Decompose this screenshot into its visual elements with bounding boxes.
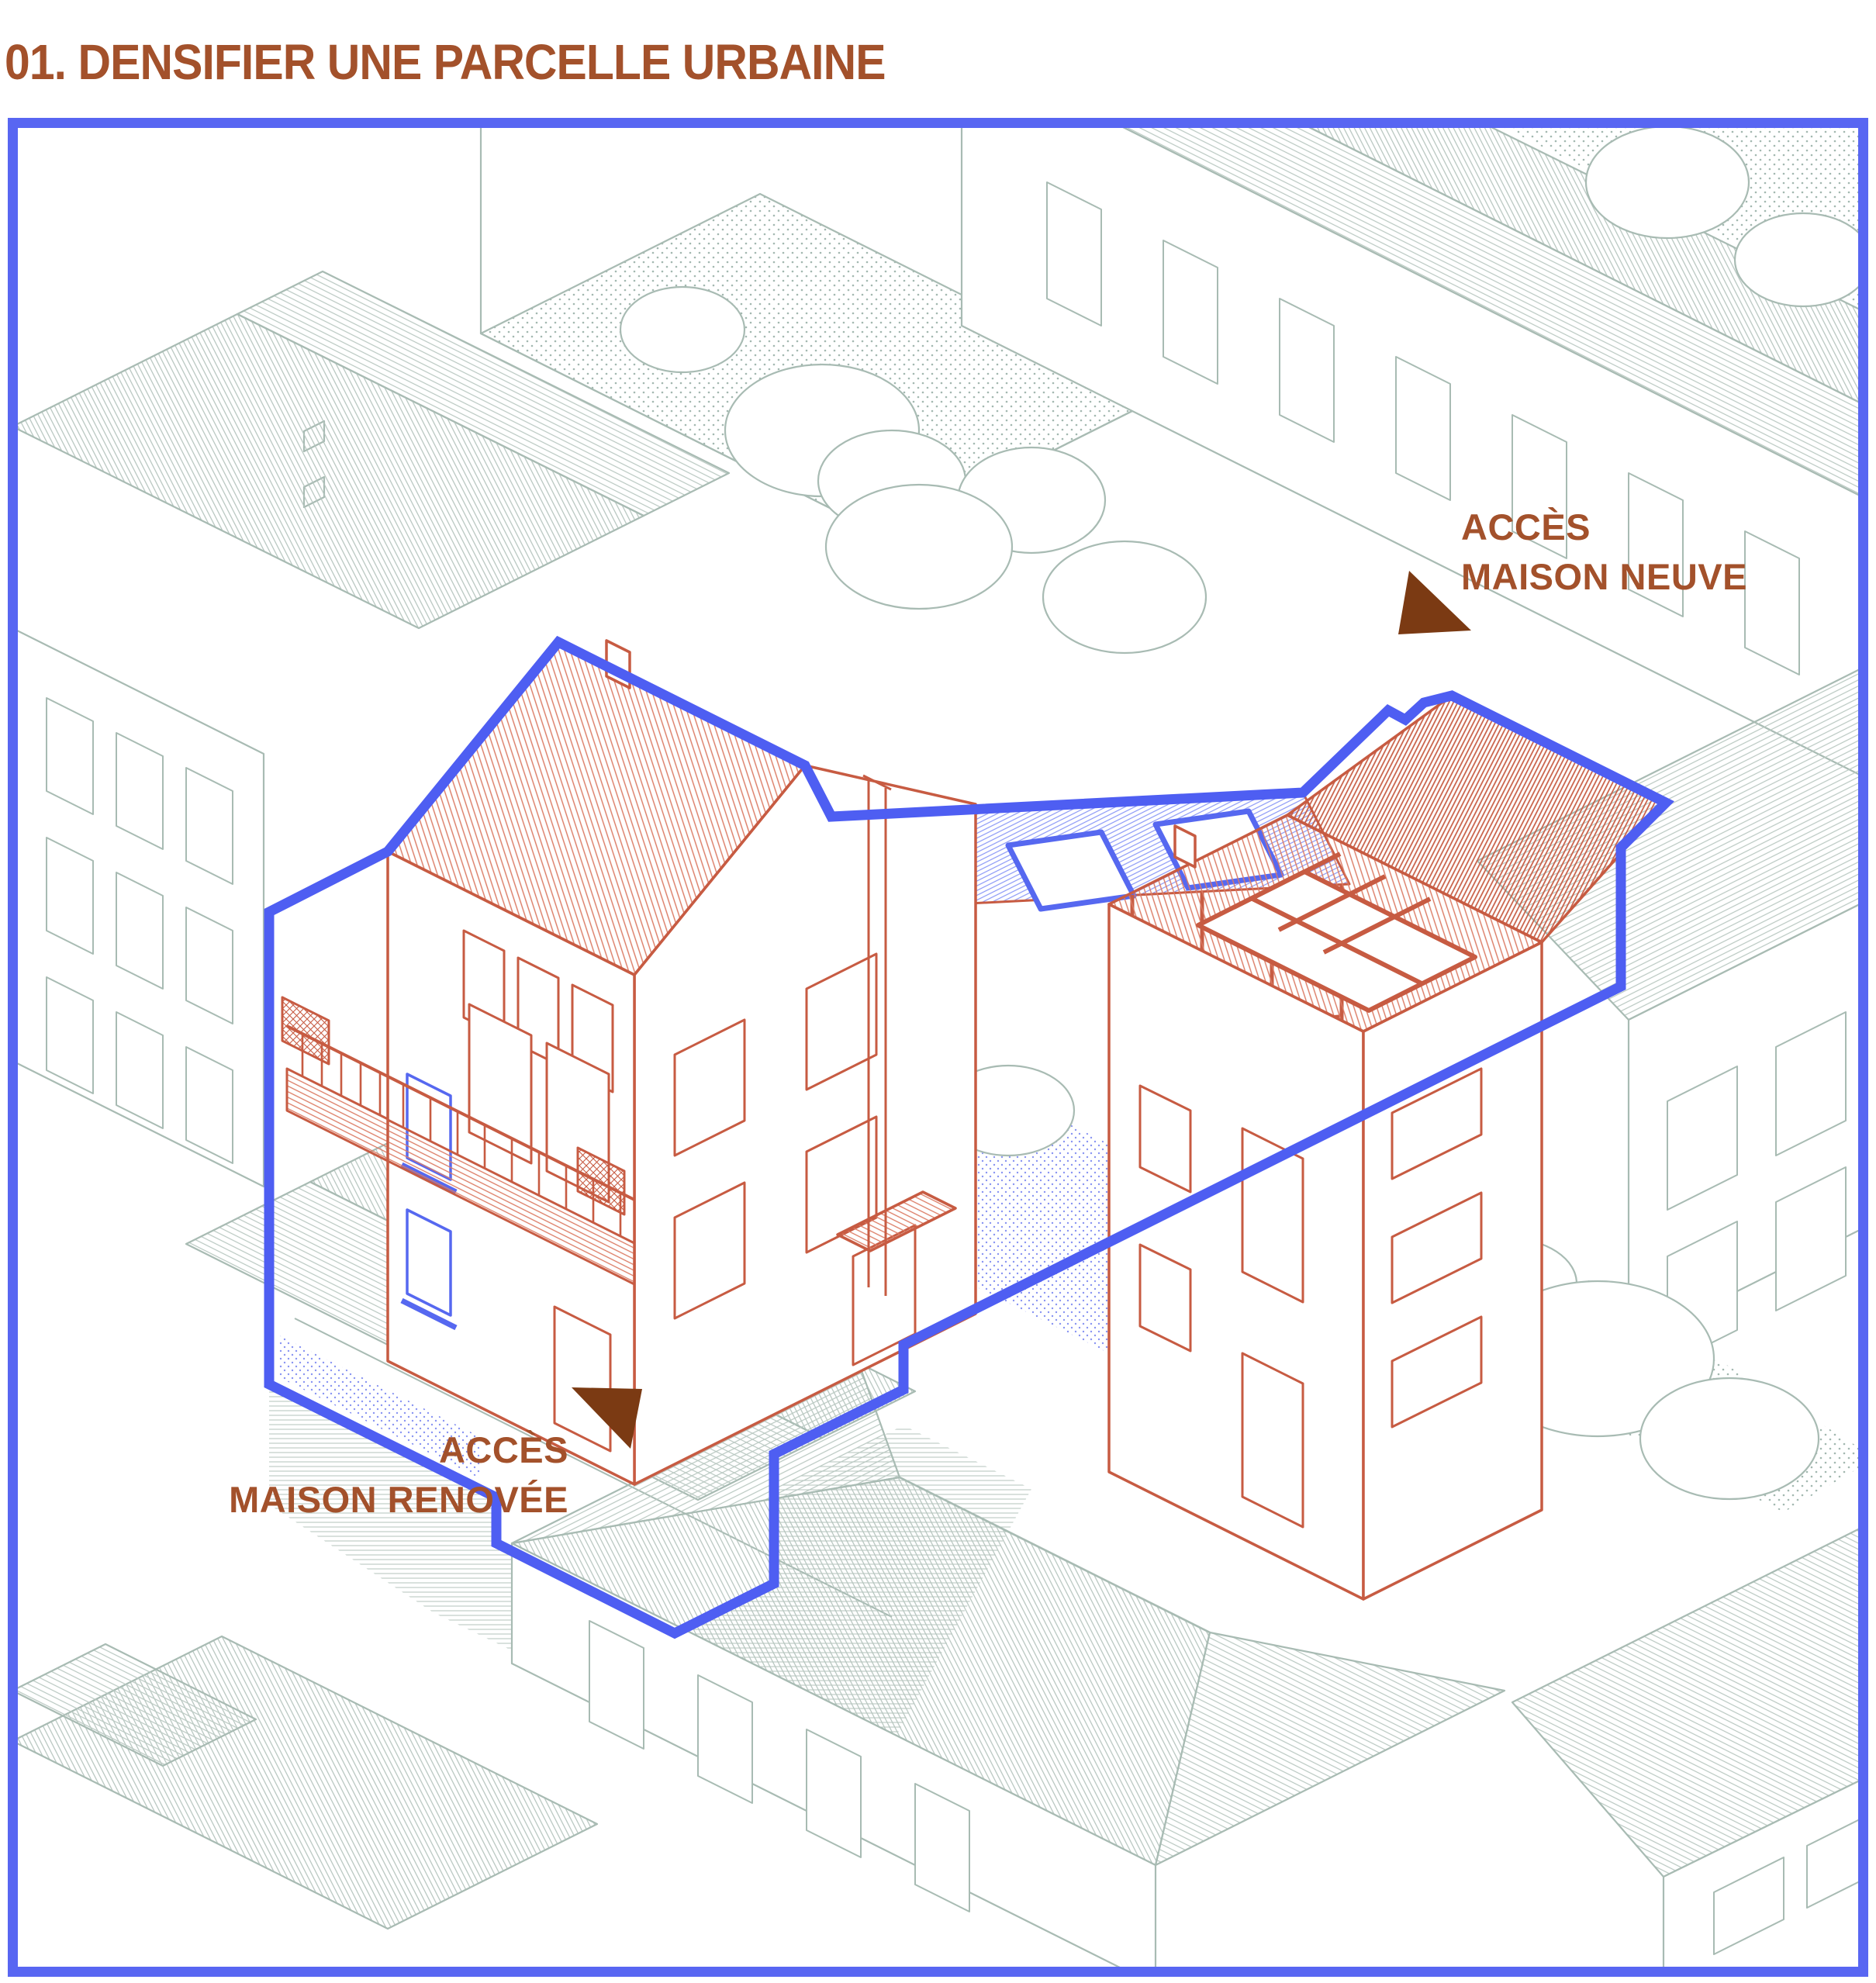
label-acces-maison-renovee: ACCÈS MAISON RENOVÉE xyxy=(194,1425,568,1525)
planter xyxy=(282,997,329,1064)
renovated-house xyxy=(282,641,976,1484)
site-axonometry xyxy=(0,0,1876,1983)
label-line: MAISON NEUVE xyxy=(1461,552,1747,602)
label-line: MAISON RENOVÉE xyxy=(194,1475,568,1525)
label-acces-maison-neuve: ACCÈS MAISON NEUVE xyxy=(1461,503,1747,602)
label-line: ACCÈS xyxy=(194,1425,568,1475)
context-building-northeast xyxy=(962,0,1871,776)
label-line: ACCÈS xyxy=(1461,503,1747,552)
access-maison-neuve-arrow-icon xyxy=(1398,571,1471,634)
